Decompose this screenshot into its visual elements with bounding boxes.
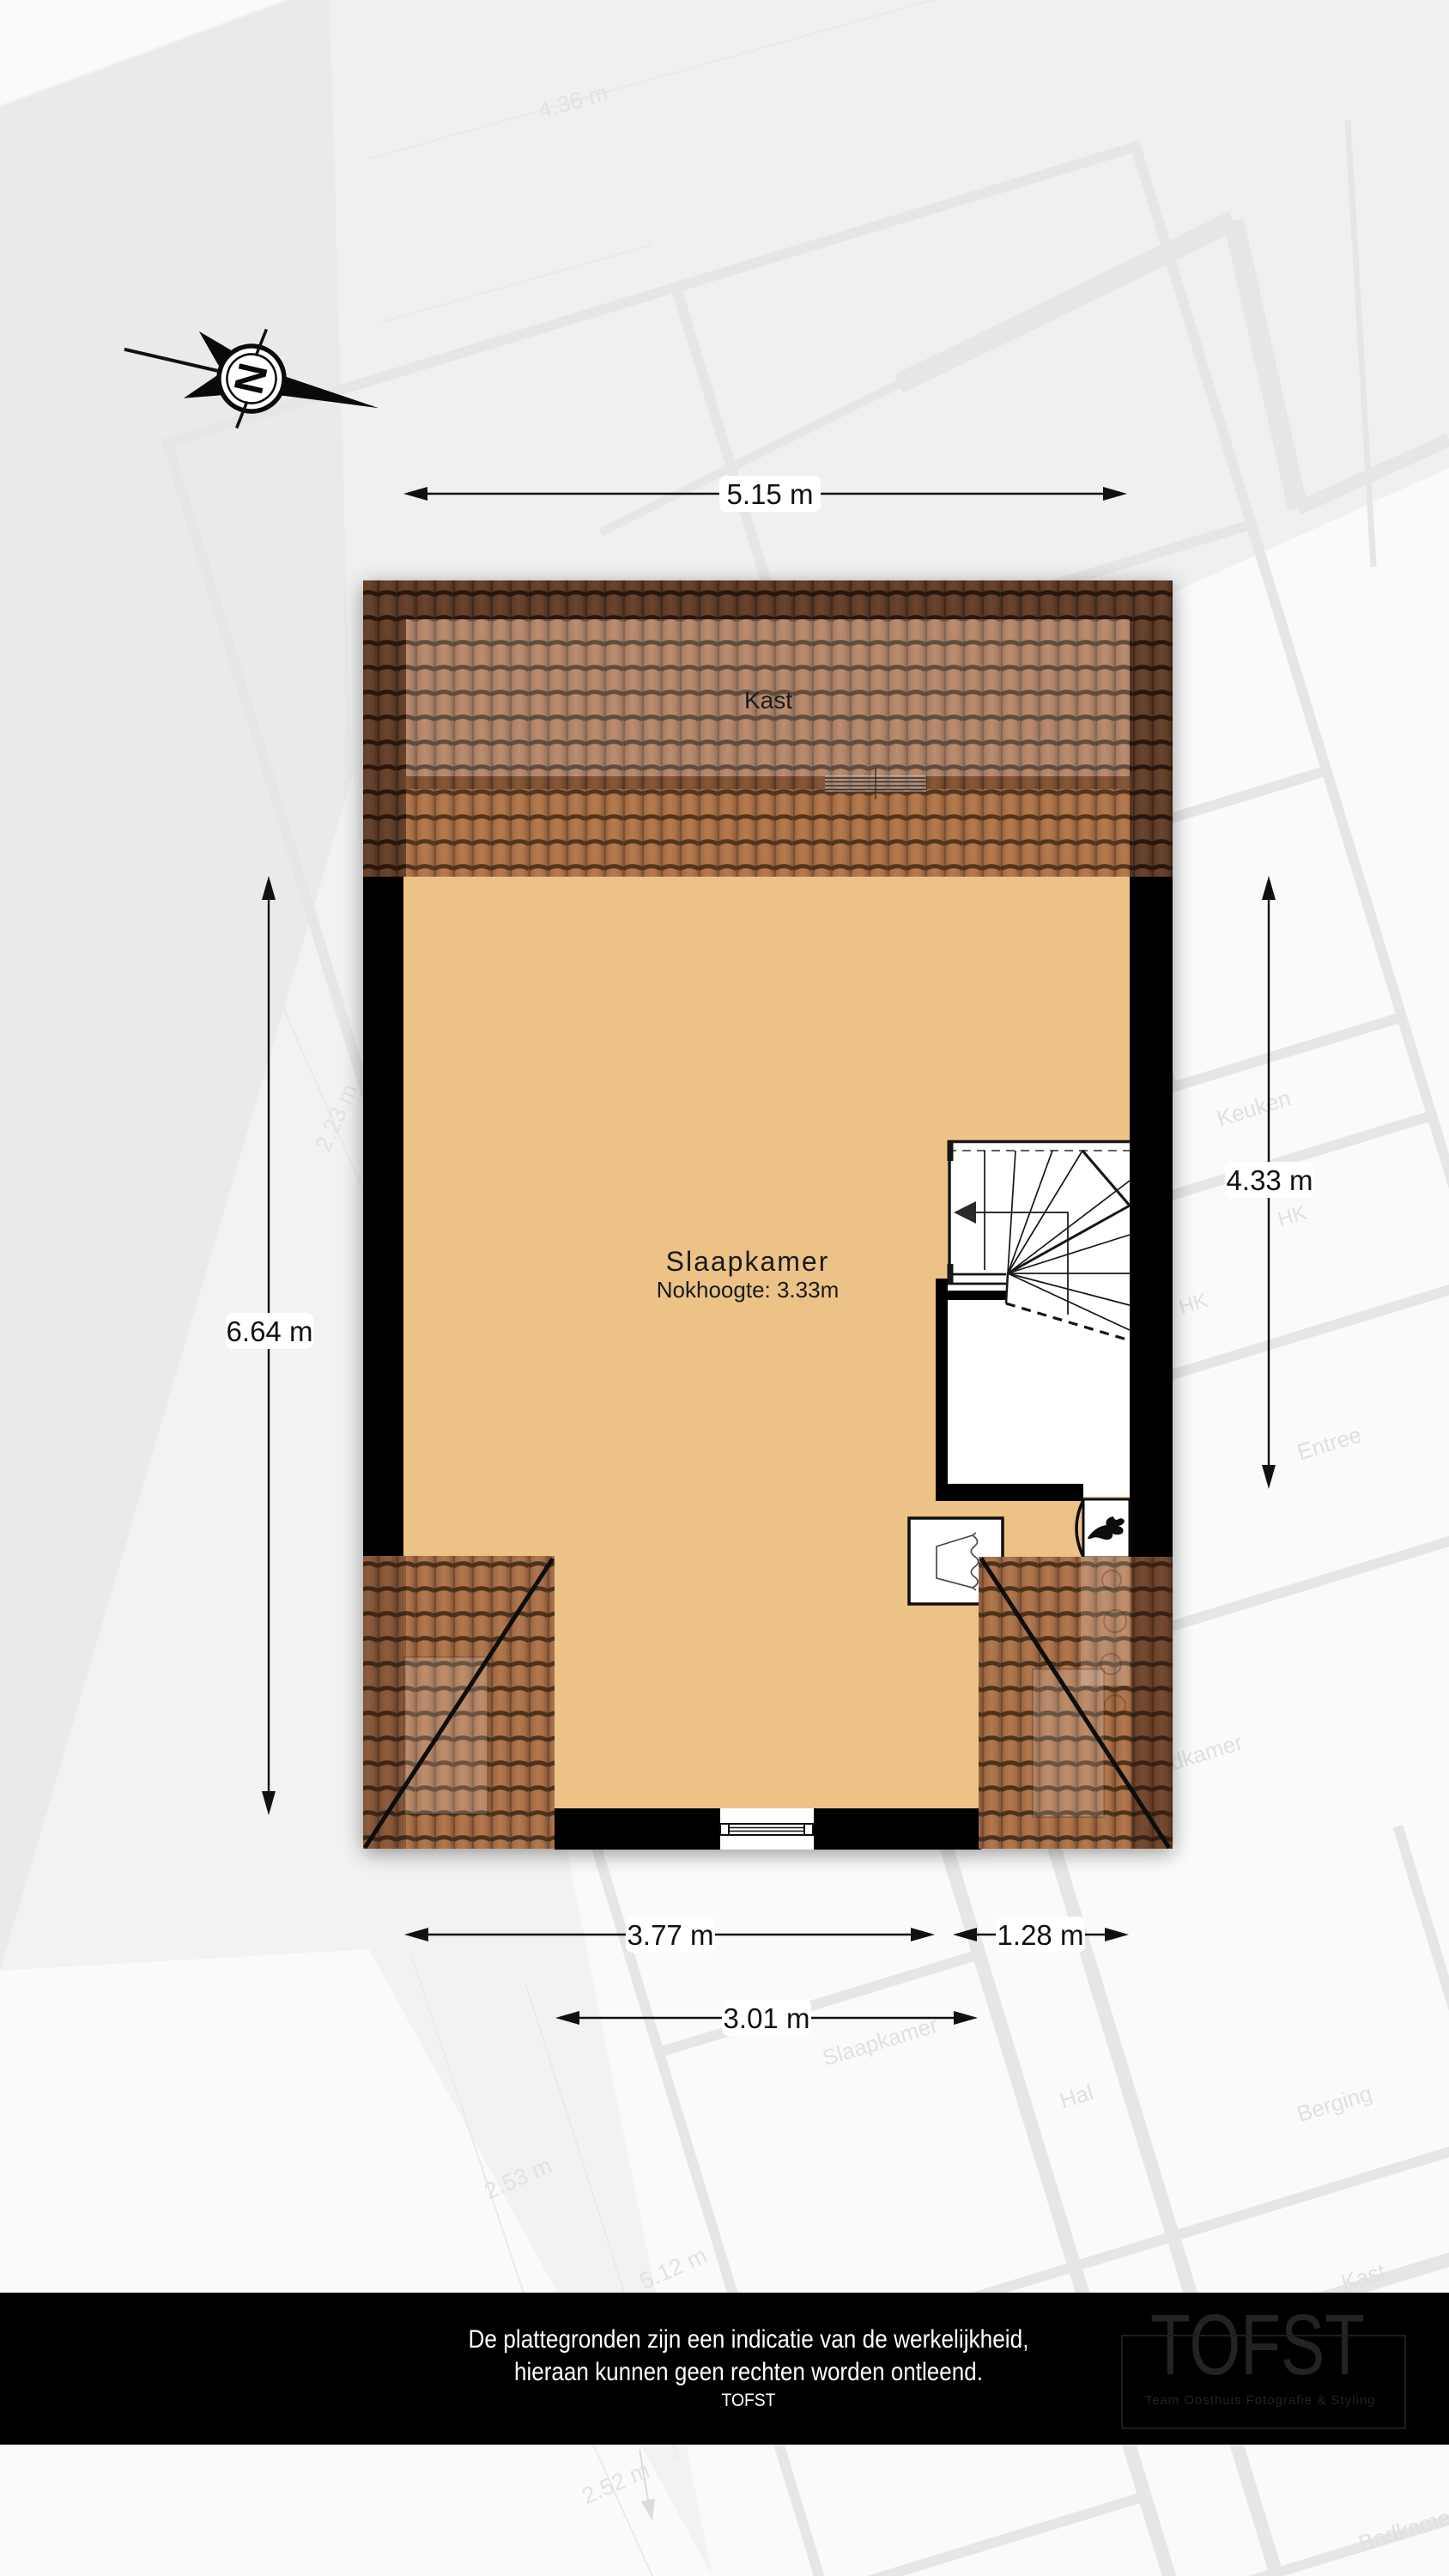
svg-text:Nokhoogte: 3.33m: Nokhoogte: 3.33m <box>657 1277 839 1303</box>
svg-text:5.15 m: 5.15 m <box>727 478 814 510</box>
svg-text:4.33 m: 4.33 m <box>1227 1164 1313 1196</box>
svg-text:3.77 m: 3.77 m <box>627 1919 714 1951</box>
svg-text:6.64 m: 6.64 m <box>227 1315 313 1347</box>
svg-text:hieraan kunnen geen rechten wo: hieraan kunnen geen rechten worden ontle… <box>514 2358 983 2386</box>
svg-text:De plattegronden zijn een indi: De plattegronden zijn een indicatie van … <box>469 2325 1029 2354</box>
svg-text:Team Oosthuis Fotografie & Sty: Team Oosthuis Fotografie & Styling <box>1144 2393 1375 2408</box>
svg-text:3.01 m: 3.01 m <box>724 2002 810 2034</box>
svg-text:Slaapkamer: Slaapkamer <box>666 1246 830 1277</box>
svg-text:TOFST: TOFST <box>1150 2297 1365 2393</box>
svg-text:Kast: Kast <box>744 687 792 714</box>
svg-text:TOFST: TOFST <box>722 2391 776 2410</box>
svg-text:1.28 m: 1.28 m <box>997 1919 1084 1951</box>
